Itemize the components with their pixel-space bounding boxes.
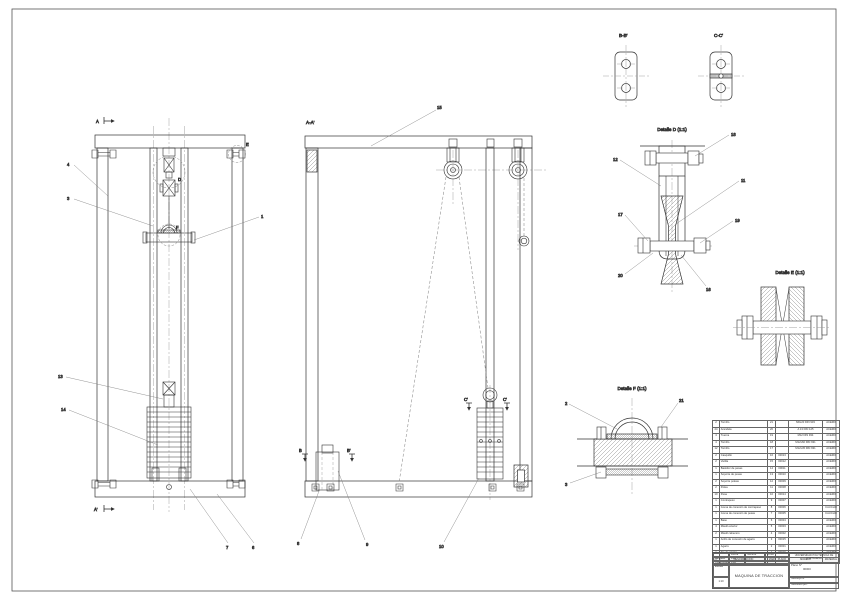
section-bb-title: B-B': [619, 33, 628, 38]
tb-escala-value: 1:10: [713, 577, 729, 588]
centerlines: [436, 150, 546, 500]
tb-plano-label: Plano Nº: [791, 563, 802, 567]
upper-bolt: [645, 151, 703, 165]
detail-e-title: Detalle E (1:1): [775, 270, 805, 275]
detail-d-title: Detalle D (1:1): [657, 127, 687, 132]
top-beam: [95, 135, 245, 148]
callout-8: 8: [297, 541, 300, 546]
title-block: Fecha Nombre Firma Dibujado 14/8 Comprob…: [712, 552, 839, 589]
callout-14: 14: [61, 407, 66, 412]
callout-4: 4: [67, 162, 70, 167]
section-cc-view: C-C': [698, 33, 744, 107]
callout-3b: 3: [565, 482, 568, 487]
counterweight: [316, 445, 339, 490]
detail-f-title: Detalle F (1:1): [617, 386, 647, 391]
detail-d-label: D: [178, 177, 181, 182]
callout-16: 16: [706, 287, 711, 292]
tb-escala-label: Escala: [713, 565, 729, 577]
hand-ring: [519, 236, 529, 246]
callout-17: 17: [618, 212, 623, 217]
section-mark-a: A: [96, 119, 99, 124]
section-mark-c: C': [464, 397, 468, 402]
callout-9: 9: [366, 542, 369, 547]
callout-21: 21: [679, 398, 684, 403]
detail-d-view: Detalle D (1:1) 18 12 11 17 19: [613, 127, 746, 292]
left-column: [306, 148, 318, 481]
detail-f-label: F: [176, 225, 179, 230]
weight-block-section: [594, 439, 672, 466]
callout-19: 19: [735, 218, 740, 223]
bom-body: 2Tornillo21M6x20 DIN 933ACERO24Arandela2…: [713, 421, 840, 558]
callout-12: 12: [613, 157, 618, 162]
section-bb-view: B-B': [603, 33, 649, 107]
right-column: [232, 148, 243, 481]
bom-table: 2Tornillo21M6x20 DIN 933ACERO24Arandela2…: [712, 420, 839, 564]
pulley-wheel-section: [661, 196, 683, 284]
beam-fittings: [447, 139, 524, 162]
callout-11: 11: [741, 178, 746, 183]
drawing-sheet: A A' E D F 4 3 1 13 14 7 6 A-A': [0, 0, 848, 600]
callout-15: 15: [437, 105, 442, 110]
handle-base-strip: [607, 434, 657, 439]
callout-18: 18: [731, 132, 736, 137]
detail-e-view: Detalle E (1:1): [733, 270, 830, 365]
section-aa-view: A-A': [297, 105, 546, 549]
front-view: A A' E D F 4 3 1 13 14 7 6: [58, 117, 264, 550]
aa-leaders: [301, 110, 479, 542]
section-aa-title: A-A': [306, 120, 315, 125]
cables: [399, 177, 524, 483]
callout-3: 3: [67, 196, 70, 201]
base-anchors: [312, 484, 524, 491]
top-beam: [305, 136, 532, 148]
column-cut-hatch: [307, 150, 317, 172]
base-slot: [518, 470, 525, 482]
left-column: [97, 148, 108, 481]
callout-10: 10: [439, 544, 444, 549]
callout-20: 20: [618, 273, 623, 278]
section-mark-c-prime: C': [503, 397, 507, 402]
section-a-marks: [104, 117, 114, 512]
section-mark-b: B: [299, 448, 302, 453]
tb-plano-number: 00000: [803, 567, 811, 571]
section-mark-a-prime: A': [94, 507, 98, 512]
detail-e-label: E: [246, 142, 249, 147]
callout-6: 6: [252, 545, 255, 550]
tb-plano-box: Plano Nº 00000: [789, 563, 839, 577]
callout-7: 7: [226, 545, 229, 550]
callout-13: 13: [58, 374, 63, 379]
callout-2: 2: [565, 401, 568, 406]
section-cc-title: C-C': [714, 33, 723, 38]
detail-f-view: Detalle F (1:1) 2 21 3: [565, 386, 688, 494]
tb-sustituido: Sustituido por:: [789, 583, 839, 589]
callout-1: 1: [261, 214, 264, 219]
right-column: [520, 148, 532, 481]
tb-university: UNIVERSIDAD POLITÉCNICA DE CARTAGENA: [789, 553, 839, 563]
section-mark-b-prime: B': [347, 448, 351, 453]
tb-drawing-title: MAQUINA DE TRACCION: [729, 565, 789, 588]
